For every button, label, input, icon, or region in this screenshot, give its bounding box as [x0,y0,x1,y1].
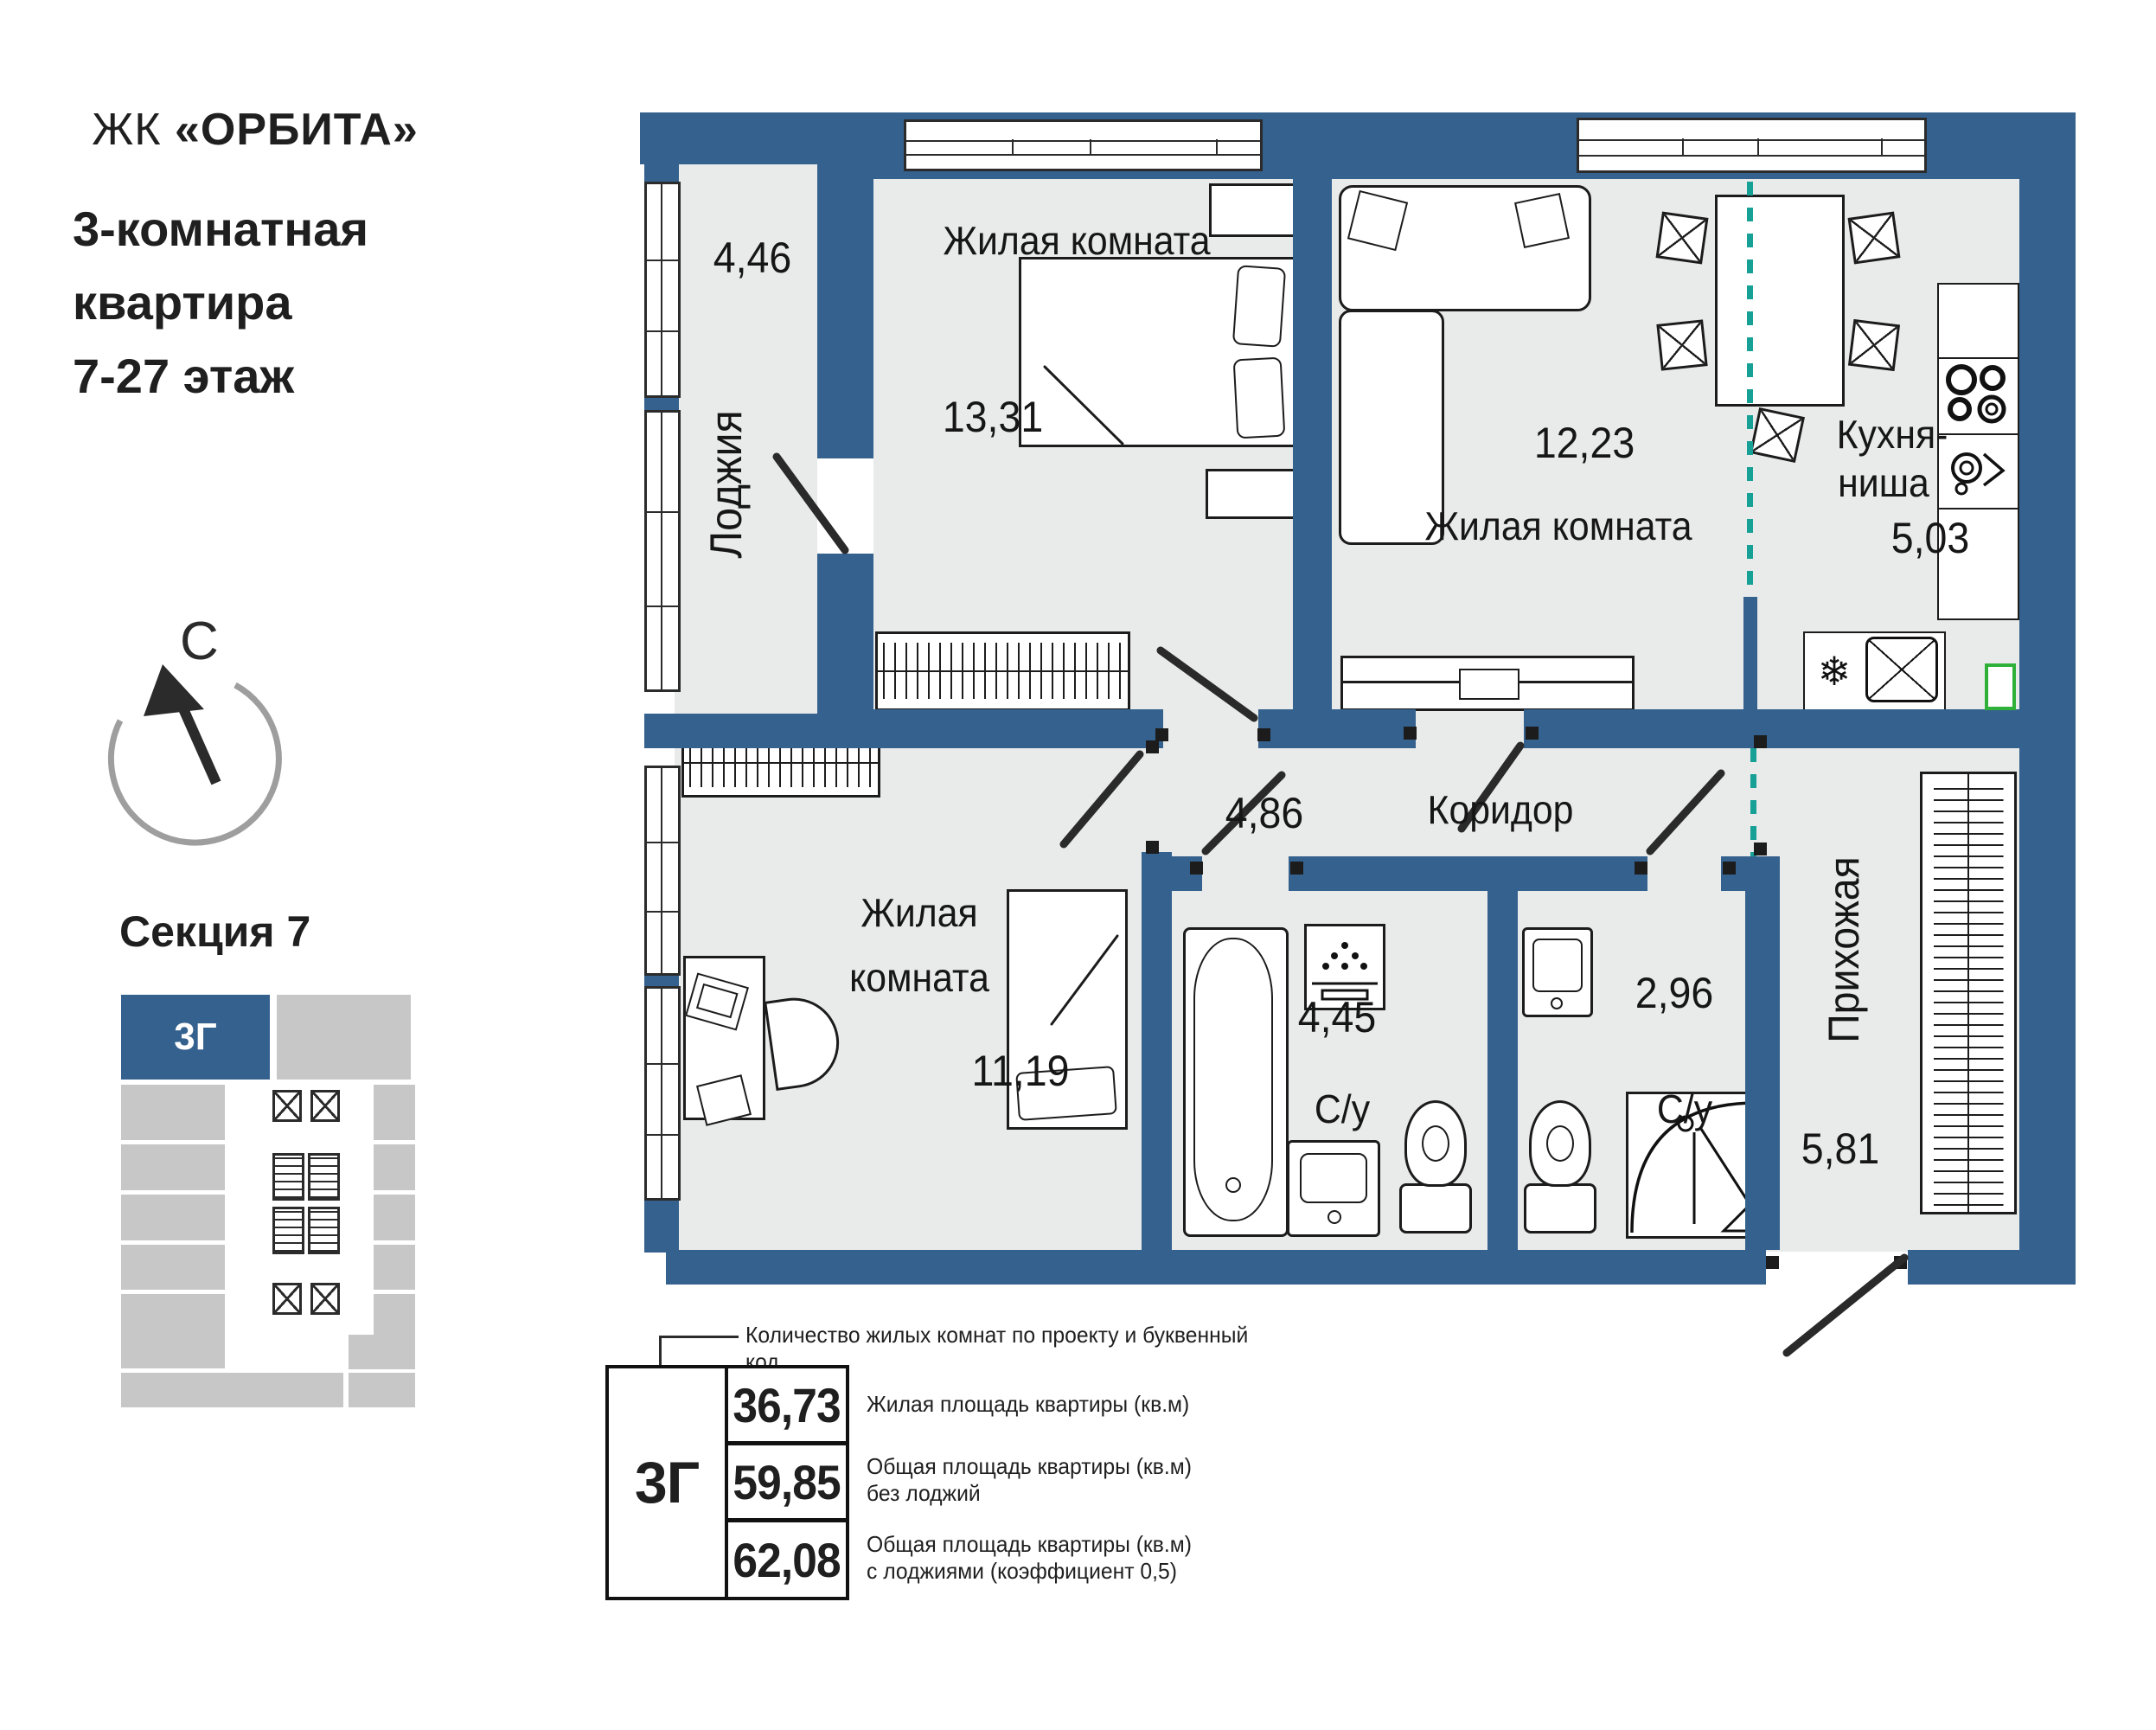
compass-arrow-tail [182,705,216,783]
minimap-stairs-icon [272,1153,304,1201]
kitchen-zone-divider [1747,182,1753,597]
legend-row1-line1: Жилая площадь квартиры (кв.м) [867,1391,1253,1418]
door-stop [1155,728,1168,741]
total-area-value: 59,85 [733,1454,841,1510]
legend-row2-line2: без лоджий [867,1480,1253,1507]
door-stop [1894,1256,1907,1269]
living-area: 12,23 [1534,418,1635,468]
legend-leader-line [659,1336,739,1338]
total-area-with-loggia-value: 62,08 [733,1532,841,1588]
minimap-flat [374,1085,415,1140]
legend-row2-line1: Общая площадь квартиры (кв.м) [867,1453,1253,1480]
bedroom2-label-2: комната [849,954,989,1001]
toilet-bowl [1404,1100,1467,1187]
minimap-flat [374,1195,415,1240]
section-minimap: 3Г [121,995,415,1410]
minimap-flat [121,1294,225,1368]
corridor-label: Коридор [1428,786,1574,833]
project-prefix: ЖК [92,105,175,155]
minimap-elevator-icon [310,1283,340,1315]
kitchen-area: 5,03 [1891,513,1970,563]
wall [873,709,1163,748]
door-stop [1754,735,1767,748]
project-title: ЖК «ОРБИТА» [52,104,458,156]
pillow [1232,265,1286,348]
wall [1743,597,1757,711]
stove-icon [1937,357,2019,435]
wall [1524,709,2041,748]
hallway-label: Прихожая [1819,856,1869,1042]
dishwasher-icon [1937,433,2019,509]
window [644,766,681,976]
wall [644,714,873,748]
subtitle-line1: 3-комнатная [73,192,368,266]
minimap-unit-3g: 3Г [121,995,270,1080]
minimap-flat [277,995,411,1080]
toilet-tank [1524,1183,1596,1233]
legend-value-cell: 36,73 [725,1365,849,1445]
hall-zone-divider [1750,748,1756,856]
minimap-flat [349,1373,415,1407]
section-title: Секция 7 [119,907,310,957]
living-label: Жилая комната [1425,503,1692,549]
door-stop [1146,740,1159,753]
legend-value-cell: 59,85 [725,1442,849,1522]
legend-row2-desc: Общая площадь квартиры (кв.м) без лоджий [867,1453,1253,1507]
wall [1289,856,1487,891]
chair-icon [1656,319,1707,370]
chair-icon [1848,212,1901,265]
fridge-snowflake-icon: ❄ [1810,647,1859,695]
minimap-stairs-icon [272,1207,304,1254]
kitchen-sink-counter: ❄ [1803,631,1946,711]
minimap-flat [121,1144,225,1190]
utility-marker [1985,663,2016,710]
minimap-flat [374,1144,415,1190]
tv-stand [1340,656,1635,711]
loggia-area: 4,46 [713,233,792,283]
wall [817,163,873,458]
kitchen-label-2: ниша [1838,459,1929,506]
nightstand [1209,183,1296,237]
minimap-stairs-icon [308,1153,340,1201]
wall [1745,856,1780,1250]
bedroom2-label-1: Жилая [860,889,977,936]
wardrobe-icon [875,631,1130,711]
door-stop [1723,862,1736,875]
wall [644,1199,679,1253]
legend-code-cell: 3Г [605,1365,728,1600]
bath2-label: С/у [1657,1086,1712,1132]
chair-icon [1848,319,1900,371]
wall [1293,177,1332,714]
hall-wardrobe-icon [1920,772,2017,1214]
chair-icon [1750,407,1805,463]
wall [640,112,873,164]
window [644,410,681,692]
legend-row3-line2: с лоджиями (коэффициент 0,5) [867,1558,1253,1585]
door-stop [1257,728,1270,741]
living-area-value: 36,73 [733,1377,841,1433]
wall [666,1250,1766,1285]
door-stop [1635,862,1647,875]
legend-row1-desc: Жилая площадь квартиры (кв.м) [867,1391,1253,1418]
bath1-label: С/у [1315,1086,1370,1132]
toilet-bowl [1529,1100,1591,1187]
subtitle-line3: 7-27 этаж [73,339,368,413]
wall [644,163,679,183]
project-name: «ОРБИТА» [175,105,419,155]
nightstand [1206,469,1296,519]
minimap-elevator-icon [272,1283,302,1315]
legend-value-cell: 62,08 [725,1519,849,1600]
legend-unit-code: 3Г [635,1449,699,1516]
wall [2019,112,2076,1285]
minimap-flat [121,1085,225,1140]
bedroom1-area: 13,31 [943,392,1043,442]
door-stop [1754,843,1767,855]
window [644,182,681,398]
wall [1487,856,1518,1250]
compass-arrow-head [144,664,204,716]
sink [1522,927,1593,1017]
window [1577,118,1927,173]
chair-icon [1656,212,1709,265]
dining-table [1715,195,1845,407]
wall [817,554,873,714]
minimap-stairs-icon [308,1207,340,1254]
bedroom2-area: 11,19 [972,1046,1070,1096]
sink-icon [1865,637,1938,702]
legend-row3-line1: Общая площадь квартиры (кв.м) [867,1531,1253,1558]
minimap-flat [121,1195,225,1240]
wall [1908,1250,2076,1285]
window [644,986,681,1201]
sofa-pillow [1514,193,1570,248]
legend-leader-line [659,1336,662,1367]
corridor-area: 4,86 [1225,788,1304,838]
bedroom1-label: Жилая комната [944,217,1211,264]
minimap-elevator-icon [310,1090,340,1122]
wall [1142,852,1172,1250]
door-stop [1190,862,1203,875]
floor-plan: ❄ [640,112,2076,1410]
window [904,119,1263,171]
sink [1287,1140,1380,1237]
entrance-door-swing [1787,1258,1904,1353]
north-compass-icon: С [86,605,311,852]
loggia-label: Лоджия [701,410,752,558]
hallway-area: 5,81 [1801,1124,1880,1174]
minimap-flat [349,1335,415,1369]
kitchen-counter [1937,283,2019,359]
legend: Количество жилых комнат по проекту и бук… [605,1322,1315,1616]
minimap-flat [121,1245,225,1290]
door-stop [1290,862,1303,875]
compass-letter: С [180,612,219,671]
toilet-tank [1399,1183,1472,1233]
pillow [1233,357,1286,439]
kitchen-label-1: Кухня- [1837,411,1948,458]
door-stop [1404,727,1417,740]
minimap-elevator-icon [272,1090,302,1122]
apartment-subtitle: 3-комнатная квартира 7-27 этаж [73,192,368,413]
bath2-area: 2,96 [1635,968,1714,1018]
subtitle-line2: квартира [73,266,368,339]
door-stop [1766,1256,1779,1269]
minimap-flat [121,1373,343,1407]
minimap-flat [374,1245,415,1290]
door-stop [1526,727,1539,740]
door-stop [1146,841,1159,854]
legend-row3-desc: Общая площадь квартиры (кв.м) с лоджиями… [867,1531,1253,1585]
bathtub [1183,927,1289,1237]
wall [1518,856,1647,891]
bath1-area: 4,45 [1298,992,1377,1042]
